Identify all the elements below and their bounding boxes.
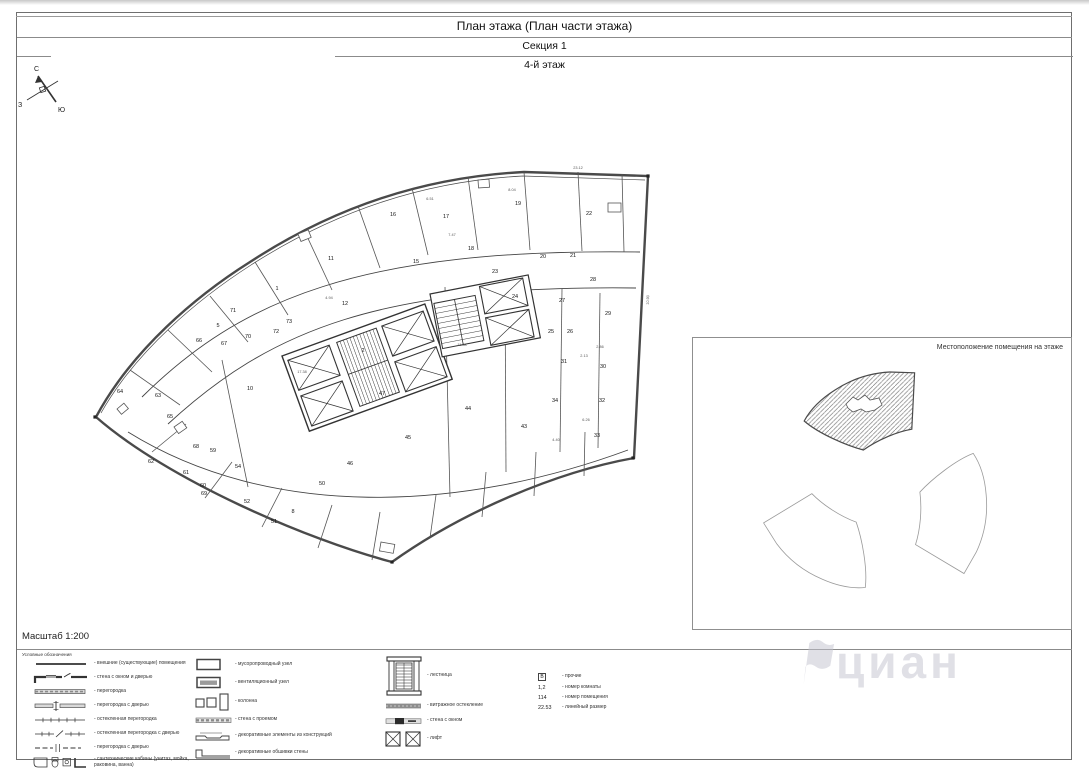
legend-column-1: - внешние (существующие) помещения - сте… [30,658,195,771]
room-number: 71 [230,308,236,314]
dimension-label: 6.26 [582,418,589,422]
page-border-inner-line [16,16,1072,17]
decor-vent-icon [193,729,235,743]
location-map [693,338,1071,629]
legend-item: - остекленная перегородка с дверью [30,728,195,740]
legend-label: - декоративные обшивки стены [235,750,308,756]
dimension-label: 7.47 [448,233,455,237]
dimension-label: 6.51 [426,197,433,201]
legend-item: 114- номер помещения [538,695,688,701]
page-title: План этажа (План части этажа) [0,19,1089,33]
room-number: 60 [200,483,206,489]
glazed-door-icon [30,728,94,740]
location-map-title: Местоположение помещения на этаже [937,344,1063,351]
compass-south-label: Ю [58,107,65,114]
room-number: 20 [540,254,546,260]
legend-item: - перегородка с дверью [30,700,195,712]
section-title: Секция 1 [0,40,1089,52]
lift-icon [383,730,427,748]
room-number: 30 [600,364,606,370]
title-divider [17,37,1072,38]
legend-item: - вентиляционный узел [193,675,368,690]
compass-west-label: З [18,102,22,109]
legend-item: - витражное остекление [383,700,543,712]
legend-label: - колонна [235,699,257,705]
room-number: 29 [605,311,611,317]
legend-symbol: В [538,673,562,681]
room-number: 32 [599,398,605,404]
map-section-1-highlighted [804,372,914,450]
scan-shadow-top [0,0,1089,5]
legend-column-4: В- прочие1,2- номер комнаты114- номер по… [538,673,688,715]
vent-hatch-icon [193,675,235,690]
room-number: 62 [148,459,154,465]
room-number: 27 [559,298,565,304]
room-number: 8 [291,509,294,515]
legend-label: - декоративные элементы из конструкций [235,733,332,739]
room-number: 23 [492,269,498,275]
sanitary-icon [30,756,94,769]
wall-opening-icon [193,714,235,726]
boundary-icon [30,658,94,670]
room-number: 52 [244,499,250,505]
scale-label: Масштаб 1:200 [22,631,89,642]
section-divider-left [17,56,51,57]
dimension-label: 23.12 [573,166,583,170]
room-number: 45 [405,435,411,441]
room-number: 5 [216,323,219,329]
legend-box-top-line [17,649,1072,650]
legend-item: - мусоропроводный узел [193,657,368,672]
legend-item: - лифт [383,730,543,748]
scanned-floor-plan-page: { "document": { "title": "План этажа (Пл… [0,0,1089,768]
room-number: 16 [390,212,396,218]
room-number: 18 [468,246,474,252]
legend-label: - остекленная перегородка с дверью [94,731,179,737]
stair-icon [383,655,427,697]
legend-item: В- прочие [538,673,688,681]
room-number: 61 [183,470,189,476]
room-number: 28 [590,277,596,283]
glazing-icon [383,700,427,712]
room-number: 54 [235,464,241,470]
compass-north-label: С [34,66,39,73]
legend-column-2: - мусоропроводный узел - вентиляционный … [193,657,368,763]
glazed-icon [30,714,94,726]
legend-label: - перегородка с дверью [94,745,149,751]
room-number: 43 [521,424,527,430]
room-number: 68 [193,444,199,450]
legend-label: - перегородка с дверью [94,703,149,709]
legend-label: - мусоропроводный узел [235,662,292,668]
legend-item: - остекленная перегородка [30,714,195,726]
room-number: 69 [201,491,207,497]
map-section-2 [896,440,1017,574]
room-number: 47 [379,391,385,397]
legend-label: - витражное остекление [427,703,483,709]
room-number: 34 [552,398,558,404]
room-number: 15 [413,259,419,265]
survey-marker [631,456,634,459]
legend-label: - лифт [427,736,442,742]
room-number: 2 [361,348,364,354]
room-number: 66 [196,338,202,344]
dimension-label: 11.58 [457,343,466,347]
legend-label: - стена с окном и дверью [94,675,152,681]
columns-icon [193,693,235,711]
dimension-label: 8.04 [508,188,515,192]
map-section-3 [763,480,889,615]
legend-label: - вентиляционный узел [235,680,289,686]
legend-item: 1,2- номер комнаты [538,685,688,691]
legend-item: - перегородка [30,686,195,698]
vent-plain-icon [193,657,235,672]
room-number: 12 [342,301,348,307]
legend-item: 22.53- линейный размер [538,705,688,711]
legend-label: - перегородка [94,689,126,695]
room-number: 51 [271,519,277,525]
room-number: 70 [245,334,251,340]
legend-item: - декоративные элементы из конструкций [193,729,368,743]
legend-label: - внешние (существующие) помещения [94,661,186,667]
room-number: 21 [570,253,576,259]
room-number: 50 [319,481,325,487]
legend-item: - колонна [193,693,368,711]
dimension-label: 2.86 [596,345,603,349]
legend-item: - декоративные обшивки стены [193,746,368,760]
partition-icon [30,686,94,698]
room-number: 25 [548,329,554,335]
room-number: 65 [167,414,173,420]
room-number: 67 [221,341,227,347]
room-number: 72 [273,329,279,335]
legend-label: - прочие [562,674,581,680]
room-number: 17 [443,214,449,220]
legend-symbol: 22.53 [538,705,562,711]
room-number: 63 [155,393,161,399]
survey-marker [646,174,649,177]
room-number: 33 [594,433,600,439]
legend-item: - сантехнические кабины (унитаз, мойка, … [30,756,195,769]
partition-door2-icon [30,742,94,754]
legend-item: - стена с окном [383,715,543,727]
room-number: 1 [275,286,278,292]
room-number: 44 [465,406,471,412]
legend-symbol: 114 [538,695,562,701]
floor-plan: 1258101112151617181920212223242526272829… [80,160,660,575]
dimension-label: 4.94 [325,296,332,300]
decor-wall-icon [193,746,235,760]
legend-label: - номер помещения [562,695,608,701]
legend-item: - перегородка с дверью [30,742,195,754]
legend-item: - лестница [383,655,543,697]
room-number: 11 [328,256,334,262]
room-number: 73 [286,319,292,325]
survey-marker [93,415,96,418]
legend-column-3: - лестница - витражное остекление - стен… [383,655,543,751]
legend-symbol: 1,2 [538,685,562,691]
partition-door-icon [30,700,94,712]
room-number: 22 [586,211,592,217]
survey-marker [390,560,393,563]
location-map-box: Местоположение помещения на этаже [692,337,1072,630]
legend-item: - стена с окном и дверью [30,672,195,684]
legend-label: - линейный размер [562,705,606,711]
dimension-label: 2.13 [580,354,587,358]
legend-item: - внешние (существующие) помещения [30,658,195,670]
dimension-label: 4.40 [552,438,559,442]
legend-label: - лестница [427,673,452,679]
section-divider [335,56,1073,57]
wall-window-door-icon [30,672,94,684]
compass-rose-icon: С З Ю [14,60,74,118]
loggia-marker [608,203,621,212]
loggia-marker [379,542,394,553]
dimension-label: 17.38 [297,370,307,374]
legend-label: - сантехнические кабины (унитаз, мойка, … [94,757,195,768]
room-number: 31 [561,359,567,365]
floor-title: 4-й этаж [0,59,1089,71]
room-number: 46 [347,461,353,467]
dimension-label: 10.90 [646,295,650,305]
room-number: 19 [515,201,521,207]
room-number: 24 [512,294,518,300]
legend-label: - стена с окном [427,718,462,724]
legend-label: - номер комнаты [562,685,601,691]
legend-item: - стена с проемом [193,714,368,726]
legend-label: - стена с проемом [235,717,277,723]
legend-title: Условные обозначения [22,652,72,657]
room-number: 10 [247,386,253,392]
wall-window-band-icon [383,715,427,727]
room-number: 59 [210,448,216,454]
room-number: 64 [117,389,123,395]
loggia-marker [478,179,490,188]
room-number: 26 [567,329,573,335]
legend-label: - остекленная перегородка [94,717,157,723]
